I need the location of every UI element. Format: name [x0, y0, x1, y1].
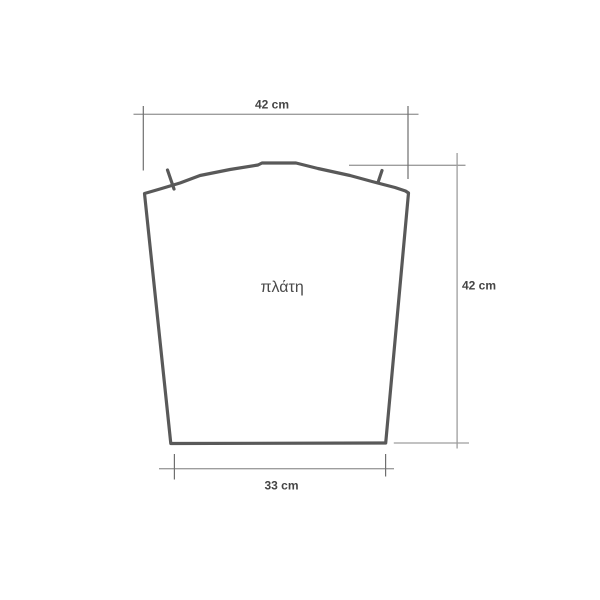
svg-text:42 cm: 42 cm [462, 278, 496, 292]
svg-text:42 cm: 42 cm [255, 98, 289, 112]
svg-text:33 cm: 33 cm [265, 478, 299, 492]
svg-text:πλάτη: πλάτη [261, 279, 304, 296]
